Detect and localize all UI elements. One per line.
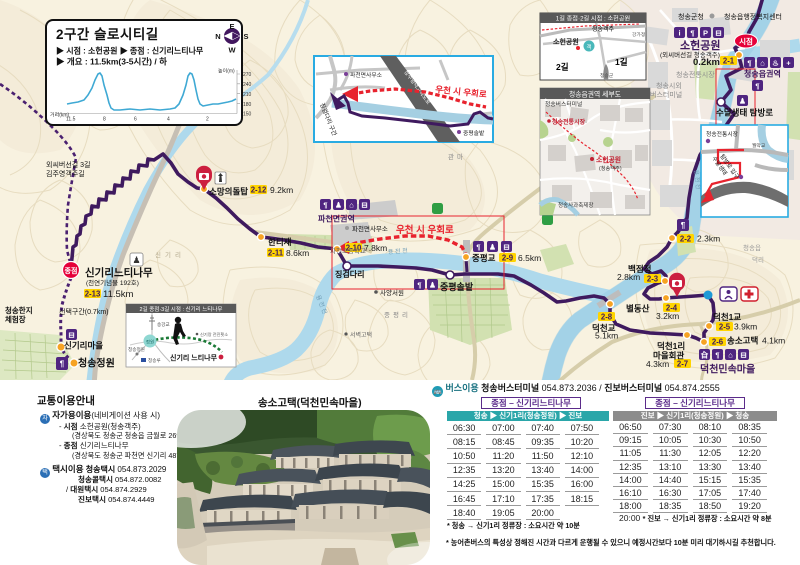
svg-text:4: 4 <box>167 117 170 123</box>
svg-text:선택구간(0.7km): 선택구간(0.7km) <box>59 307 108 316</box>
svg-text:우천 시 우회로: 우천 시 우회로 <box>396 224 454 236</box>
svg-text:송소고택: 송소고택 <box>727 336 758 346</box>
svg-text:⌂: ⌂ <box>760 59 765 68</box>
svg-text:파천초등학교: 파천초등학교 <box>330 246 366 255</box>
svg-text:♟: ♟ <box>739 97 746 106</box>
svg-text:⊟: ⊟ <box>361 201 368 210</box>
svg-text:객: 객 <box>586 44 591 51</box>
svg-text:¶: ¶ <box>476 243 480 252</box>
svg-text:강가정: 강가정 <box>632 31 645 38</box>
svg-text:청송군: 청송군 <box>600 72 614 79</box>
svg-text:시점: 시점 <box>739 36 753 46</box>
svg-text:2길 종점·3길 시점 : 신기리 느티나무: 2길 종점·3길 시점 : 신기리 느티나무 <box>140 305 223 313</box>
svg-text:¶: ¶ <box>323 201 327 210</box>
svg-text:김주영객주길: 김주영객주길 <box>46 169 85 178</box>
svg-text:신기리마을: 신기리마을 <box>64 341 103 351</box>
svg-text:2-8: 2-8 <box>601 312 613 321</box>
svg-text:청송읍: 청송읍 <box>743 244 761 252</box>
svg-text:한티재: 한티재 <box>268 237 292 247</box>
svg-text:버스터미널: 버스터미널 <box>650 90 682 99</box>
svg-text:2구간 슬로시티길: 2구간 슬로시티길 <box>56 26 159 42</box>
svg-text:소헌공원: 소헌공원 <box>680 38 720 52</box>
svg-text:덕천1교: 덕천1교 <box>713 312 741 322</box>
svg-text:청송루: 청송루 <box>148 357 161 364</box>
svg-text:♟: ♟ <box>429 281 436 290</box>
svg-text:+: + <box>786 59 791 68</box>
svg-text:1길 종점·2길 시점 : 소헌공원: 1길 종점·2길 시점 : 소헌공원 <box>556 15 631 23</box>
svg-text:청송전통시장: 청송전통시장 <box>706 130 739 138</box>
svg-text:2-11: 2-11 <box>268 248 284 257</box>
svg-text:신기랑 전진횟소: 신기랑 전진횟소 <box>200 331 228 338</box>
svg-text:신기리느티나무: 신기리느티나무 <box>85 266 153 279</box>
svg-text:중평교: 중평교 <box>472 253 496 263</box>
svg-text:정원: 정원 <box>146 339 154 345</box>
svg-text:2: 2 <box>206 117 209 123</box>
svg-text:소헌공원: 소헌공원 <box>596 155 621 164</box>
svg-text:파천면사무소: 파천면사무소 <box>350 71 383 79</box>
svg-text:9.2km: 9.2km <box>270 185 293 195</box>
svg-text:청송버스터미널: 청송버스터미널 <box>545 100 582 108</box>
svg-text:송강교: 송강교 <box>157 321 170 327</box>
svg-text:11.5km: 11.5km <box>103 289 134 300</box>
svg-text:청송정원: 청송정원 <box>78 357 115 370</box>
svg-text:11.5: 11.5 <box>66 117 76 123</box>
svg-text:240: 240 <box>243 82 252 88</box>
svg-text:청송시외: 청송시외 <box>656 81 682 90</box>
svg-text:중평솔밭: 중평솔밭 <box>440 281 474 292</box>
svg-text:청송읍권역 세부도: 청송읍권역 세부도 <box>569 90 621 99</box>
svg-text:¶: ¶ <box>715 351 719 360</box>
svg-text:(천연기념물 192호): (천연기념물 192호) <box>86 278 139 287</box>
svg-text:청송정원: 청송정원 <box>128 346 145 352</box>
svg-text:청송군청: 청송군청 <box>678 13 704 21</box>
svg-text:¶: ¶ <box>681 221 686 230</box>
svg-text:¶: ¶ <box>417 281 421 290</box>
svg-text:E: E <box>229 22 234 31</box>
svg-text:⊟: ⊟ <box>503 243 510 252</box>
svg-text:마을회관: 마을회관 <box>653 351 684 361</box>
svg-text:2길: 2길 <box>556 62 569 72</box>
svg-text:▶ 개요 : 11.5km(3-5시간) / 하: ▶ 개요 : 11.5km(3-5시간) / 하 <box>56 57 167 67</box>
svg-text:덕천민속마을: 덕천민속마을 <box>700 363 755 376</box>
svg-text:♟: ♟ <box>335 201 342 210</box>
svg-text:♟: ♟ <box>489 243 496 252</box>
svg-text:㒲: 㒲 <box>700 350 709 360</box>
svg-text:¶: ¶ <box>690 29 694 38</box>
svg-text:소헌공원: 소헌공원 <box>553 37 579 46</box>
svg-text:210: 210 <box>243 92 252 98</box>
svg-text:2-9: 2-9 <box>502 253 514 262</box>
svg-text:징검다리: 징검다리 <box>335 269 364 279</box>
svg-text:(청송객주): (청송객주) <box>599 164 622 172</box>
svg-text:2-3: 2-3 <box>647 274 659 283</box>
svg-text:파천면사무소: 파천면사무소 <box>352 224 388 233</box>
svg-text:청송읍권역: 청송읍권역 <box>744 69 781 79</box>
svg-text:2-12: 2-12 <box>251 185 267 194</box>
svg-text:3.2km: 3.2km <box>656 311 679 321</box>
svg-text:2-5: 2-5 <box>719 322 731 331</box>
svg-text:월막교: 월막교 <box>752 142 766 149</box>
svg-text:청송객주: 청송객주 <box>592 25 615 33</box>
svg-text:2-7: 2-7 <box>677 359 688 368</box>
svg-text:서벽고택: 서벽고택 <box>350 331 372 339</box>
svg-text:2-13: 2-13 <box>85 289 101 298</box>
svg-text:⌂: ⌂ <box>349 201 354 210</box>
svg-text:150: 150 <box>243 112 252 118</box>
svg-text:⌂: ⌂ <box>728 351 733 360</box>
svg-text:2-1: 2-1 <box>723 56 735 65</box>
svg-text:덕천교: 덕천교 <box>592 323 616 333</box>
svg-text:높이(m): 높이(m) <box>218 68 235 75</box>
svg-text:P: P <box>703 29 708 38</box>
svg-text:4.3km: 4.3km <box>646 359 669 369</box>
svg-text:백점정: 백점정 <box>628 264 651 274</box>
svg-text:관마: 관마 <box>448 152 466 161</box>
svg-text:중평리: 중평리 <box>384 310 411 319</box>
svg-text:청송사과축제장: 청송사과축제장 <box>558 201 593 209</box>
svg-text:8: 8 <box>103 117 106 123</box>
svg-text:W: W <box>228 46 236 55</box>
svg-text:⊟: ⊟ <box>68 331 75 340</box>
svg-text:♨: ♨ <box>772 59 779 68</box>
svg-text:체험장: 체험장 <box>5 314 26 324</box>
svg-text:N: N <box>215 32 220 41</box>
svg-text:⊟: ⊟ <box>740 351 747 360</box>
svg-text:⊟: ⊟ <box>715 29 722 38</box>
svg-text:i: i <box>678 29 680 38</box>
svg-text:사양서원: 사양서원 <box>380 288 404 297</box>
svg-text:수달생태 탐방로: 수달생태 탐방로 <box>716 108 773 118</box>
svg-text:2.3km: 2.3km <box>697 234 720 244</box>
svg-text:180: 180 <box>243 102 252 108</box>
svg-text:중평솔밭: 중평솔밭 <box>463 129 485 137</box>
svg-text:1길: 1길 <box>615 57 628 67</box>
svg-text:파천면권역: 파천면권역 <box>318 214 355 224</box>
svg-text:6: 6 <box>134 117 137 123</box>
svg-text:♟: ♟ <box>132 255 140 265</box>
svg-text:2-6: 2-6 <box>712 337 724 346</box>
svg-text:청송전통시장: 청송전통시장 <box>552 118 586 126</box>
svg-text:3.9km: 3.9km <box>734 322 757 332</box>
svg-text:청송읍행정복지센터: 청송읍행정복지센터 <box>724 12 782 21</box>
svg-text:2-2: 2-2 <box>680 234 692 243</box>
svg-text:신기리: 신기리 <box>155 250 185 259</box>
svg-text:¶: ¶ <box>747 59 751 68</box>
svg-text:종점: 종점 <box>65 266 78 275</box>
svg-text:소망의돌탑: 소망의돌탑 <box>209 187 248 197</box>
svg-text:▶ 시점 : 소헌공원 ▶ 종점 : 신기리느티나무: ▶ 시점 : 소헌공원 ▶ 종점 : 신기리느티나무 <box>56 46 204 56</box>
svg-text:외씨버선길 3길: 외씨버선길 3길 <box>46 160 90 169</box>
svg-text:8.6km: 8.6km <box>286 248 309 258</box>
svg-text:¶: ¶ <box>60 360 65 369</box>
svg-text:S: S <box>243 32 248 41</box>
svg-text:270: 270 <box>243 72 252 78</box>
svg-text:6.5km: 6.5km <box>518 253 541 263</box>
svg-text:¶: ¶ <box>755 82 759 91</box>
svg-text:7.8km: 7.8km <box>364 243 387 253</box>
svg-text:덕천1리: 덕천1리 <box>657 341 685 351</box>
svg-text:별동산: 별동산 <box>626 304 650 314</box>
svg-text:청송한지: 청송한지 <box>5 305 33 315</box>
svg-text:4.1km: 4.1km <box>762 336 785 346</box>
svg-text:청송전통시장: 청송전통시장 <box>676 70 715 79</box>
svg-text:신기리 느티나무: 신기리 느티나무 <box>170 353 218 362</box>
svg-text:덕리: 덕리 <box>752 255 764 264</box>
